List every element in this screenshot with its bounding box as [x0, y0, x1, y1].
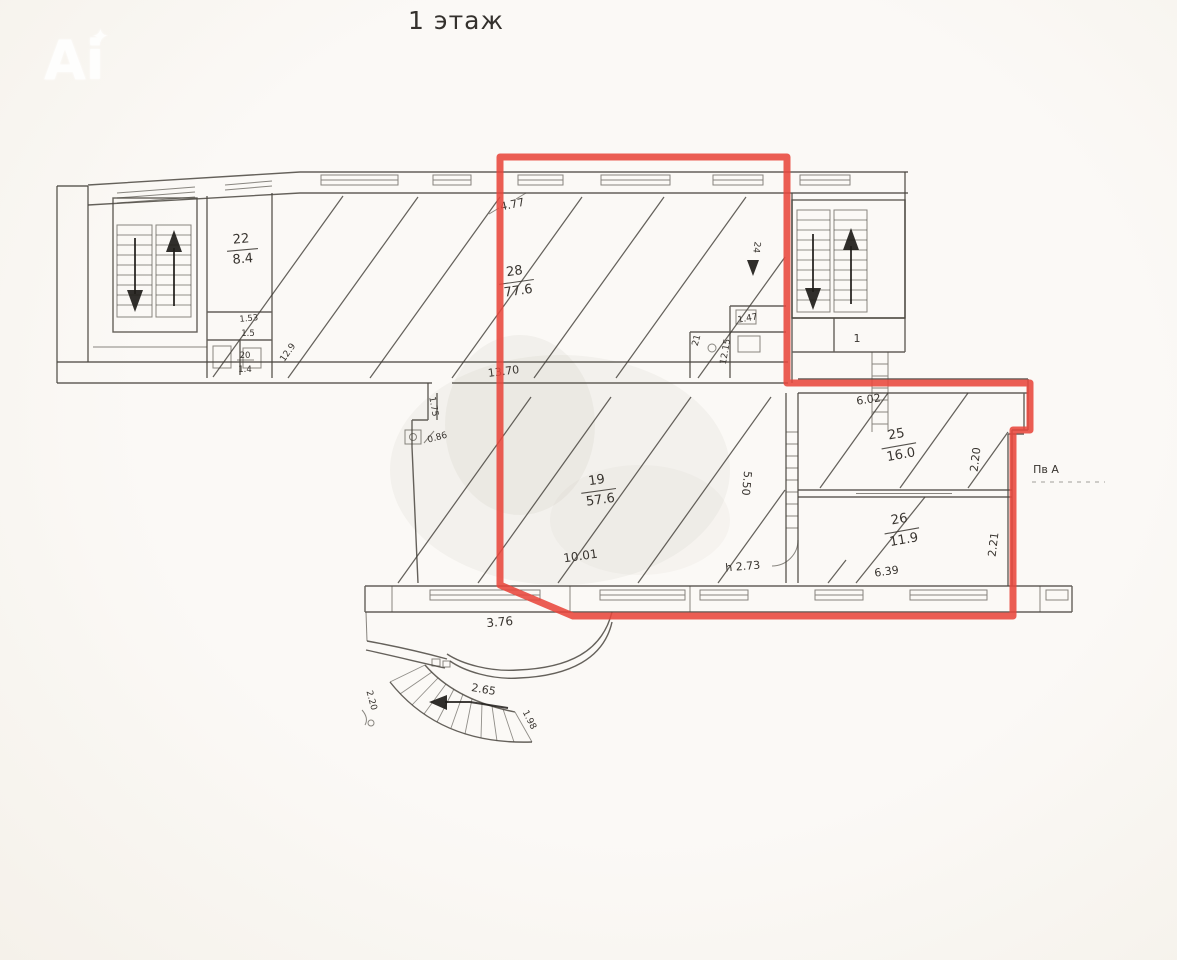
door-swing-arc	[772, 540, 798, 566]
lower-partition-wall	[786, 393, 798, 583]
window	[1046, 590, 1068, 600]
scan-shading	[390, 335, 730, 585]
top-band-windows	[117, 175, 850, 203]
room-25-number: 25	[887, 426, 906, 444]
room-25-label: 25 16.0	[878, 424, 919, 466]
dim-6-02: 6.02	[855, 391, 881, 407]
floorplan-drawing: 22 8.4 28 77.6 19 57.6 25 16.0 26	[0, 0, 1177, 960]
dim-20: 20	[240, 351, 251, 361]
dim-h-2-73: h 2.73	[725, 559, 761, 575]
fixture-knob	[708, 344, 716, 352]
wc-fixture	[738, 336, 760, 352]
up-arrow-icon	[843, 228, 859, 250]
room-26-area: 11.9	[888, 530, 919, 550]
dim-24: 24	[750, 241, 761, 254]
room25-hatch	[820, 393, 1008, 488]
porch-curve-outer	[447, 612, 612, 670]
porch-left-wall	[366, 641, 447, 668]
dim-2-65: 2.65	[470, 681, 496, 698]
left-outer-wall	[57, 186, 88, 383]
down-arrow-icon	[805, 288, 821, 310]
dim-6-39: 6.39	[873, 563, 899, 579]
dim-2-20-left: 2.20	[364, 690, 379, 712]
partition-rungs	[786, 432, 798, 528]
dim-1-98: 1.98	[520, 709, 538, 732]
sloped-windows	[117, 181, 272, 203]
porch-hook-mark	[362, 710, 366, 725]
dim-1-53: 1.53	[239, 313, 259, 325]
dim-12-9: 12.9	[279, 342, 299, 364]
dim-1-5: 1.5	[241, 329, 255, 339]
down-arrow-icon	[127, 290, 143, 312]
porch-vent-mark	[443, 661, 450, 667]
room-25-area: 16.0	[885, 445, 916, 465]
mid-wall-band	[57, 362, 788, 383]
dim-5-50: 5.50	[739, 471, 754, 497]
fan-arrow-icon	[429, 695, 447, 710]
room-19-number: 19	[587, 472, 605, 489]
porch-left-edge	[366, 612, 367, 641]
dim-2-21: 2.21	[986, 532, 1002, 558]
stair-cell-label: 1	[854, 332, 861, 345]
room-22-number: 22	[232, 231, 250, 247]
room-28-area: 77.6	[503, 282, 534, 301]
dim-12-15: 12.15	[719, 338, 733, 365]
dim-21: 21	[691, 334, 704, 348]
porch-post	[368, 720, 374, 726]
room-22-area: 8.4	[232, 251, 254, 268]
left-staircase	[113, 198, 197, 332]
room-22-label: 22 8.4	[225, 231, 259, 269]
fan-arrow-shaft	[445, 702, 508, 708]
scanned-floorplan-page: 1 этаж Ai ✦	[0, 0, 1177, 960]
top-outer-wall	[57, 172, 908, 186]
dim-3-76: 3.76	[486, 614, 514, 630]
right-staircase	[792, 200, 905, 318]
fraction-line	[227, 249, 258, 252]
room-28-number: 28	[505, 263, 523, 280]
up-arrow-icon	[166, 230, 182, 252]
right-stair-block-walls	[792, 172, 905, 383]
liter-label: Пв А	[1033, 463, 1059, 476]
dim-1-4: 1.4	[238, 365, 252, 375]
room-26-number: 26	[890, 511, 909, 529]
curved-exterior-stair	[390, 665, 532, 742]
down-arrow-icon	[747, 260, 759, 276]
